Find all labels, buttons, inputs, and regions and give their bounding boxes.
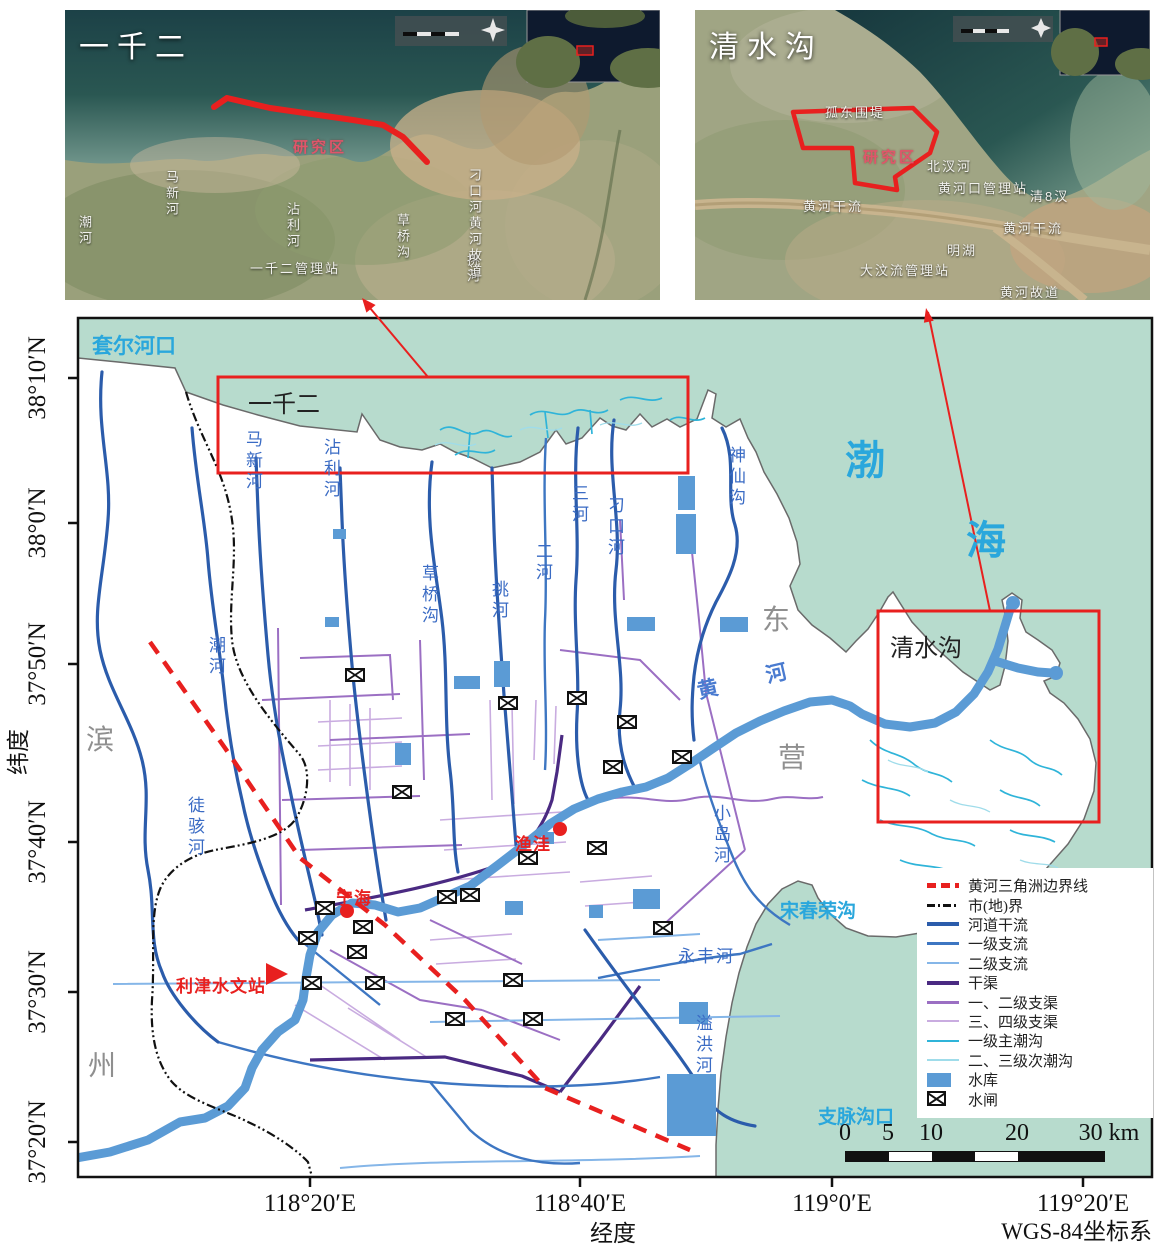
station-dot — [340, 904, 354, 918]
arrow-head-qingshuigou — [924, 308, 934, 323]
reservoir — [333, 529, 346, 539]
legend-label: 黄河三角洲边界线 — [968, 875, 1088, 896]
reservoir — [494, 661, 510, 687]
reservoir — [505, 901, 523, 915]
scale-tick: 10 — [919, 1120, 943, 1147]
scale-tick: 30 km — [1079, 1120, 1140, 1147]
legend-row: 二、三级次潮沟 — [927, 1051, 1153, 1070]
arrow-head-yiqianer — [362, 298, 376, 313]
legend-label: 一级主潮沟 — [968, 1030, 1043, 1051]
legend-swatch-7 — [927, 1020, 959, 1022]
legend-label: 一级支流 — [968, 933, 1028, 954]
scale-bar: 05102030 km — [845, 1120, 1145, 1170]
legend-row: 黄河三角洲边界线 — [927, 876, 1153, 895]
scale-tick: 20 — [1005, 1120, 1029, 1147]
legend-label: 三、四级支渠 — [968, 1011, 1058, 1032]
reservoir — [679, 1002, 708, 1024]
reservoir — [633, 889, 660, 909]
sluice-gate-icon — [927, 1091, 946, 1106]
legend-swatch-5 — [927, 981, 959, 985]
legend-swatch-0 — [927, 883, 959, 888]
reservoir — [454, 676, 480, 689]
reservoir — [678, 476, 695, 510]
legend-label: 市(地)界 — [968, 895, 1023, 916]
station-dot — [553, 822, 567, 836]
legend-row: 河道干流 — [927, 915, 1153, 934]
legend-label: 二、三级次潮沟 — [968, 1050, 1073, 1071]
legend-swatch-3 — [927, 942, 959, 945]
legend: 黄河三角洲边界线市(地)界河道干流一级支流二级支流干渠一、二级支渠三、四级支渠一… — [917, 868, 1153, 1118]
legend-row: 三、四级支渠 — [927, 1012, 1153, 1031]
legend-label: 水闸 — [968, 1089, 998, 1110]
figure-yellow-river-delta-map: 一千二研究区马新河潮河沾利河草桥沟挑河一千二管理站刁口河黄河故道 — [0, 0, 1158, 1245]
legend-swatch-9 — [927, 1059, 959, 1061]
reservoir — [676, 514, 696, 554]
legend-swatch-2 — [927, 922, 959, 926]
legend-row: 水库 — [927, 1070, 1153, 1089]
legend-row: 一级支流 — [927, 934, 1153, 953]
reservoir — [395, 743, 411, 765]
legend-row: 市(地)界 — [927, 895, 1153, 914]
reservoir — [627, 617, 655, 631]
legend-row: 干渠 — [927, 973, 1153, 992]
legend-row: 一、二级支渠 — [927, 992, 1153, 1011]
legend-swatch-6 — [927, 1001, 959, 1004]
reservoir — [720, 617, 748, 632]
scale-tick: 5 — [882, 1120, 894, 1147]
legend-label: 干渠 — [968, 972, 998, 993]
legend-label: 水库 — [968, 1069, 998, 1090]
reservoir — [667, 1074, 716, 1136]
legend-row: 二级支流 — [927, 954, 1153, 973]
legend-row: 一级主潮沟 — [927, 1031, 1153, 1050]
legend-row: 水闸 — [927, 1089, 1153, 1108]
legend-label: 二级支流 — [968, 953, 1028, 974]
scale-bar-segments — [845, 1151, 1105, 1162]
legend-label: 一、二级支渠 — [968, 992, 1058, 1013]
legend-swatch-10 — [927, 1073, 951, 1087]
legend-swatch-8 — [927, 1040, 959, 1042]
legend-label: 河道干流 — [968, 914, 1028, 935]
reservoir — [589, 905, 603, 918]
scale-tick: 0 — [839, 1120, 851, 1147]
reservoir — [325, 617, 339, 627]
reservoir — [542, 832, 554, 844]
legend-swatch-1 — [927, 904, 959, 907]
legend-swatch-4 — [927, 962, 959, 964]
